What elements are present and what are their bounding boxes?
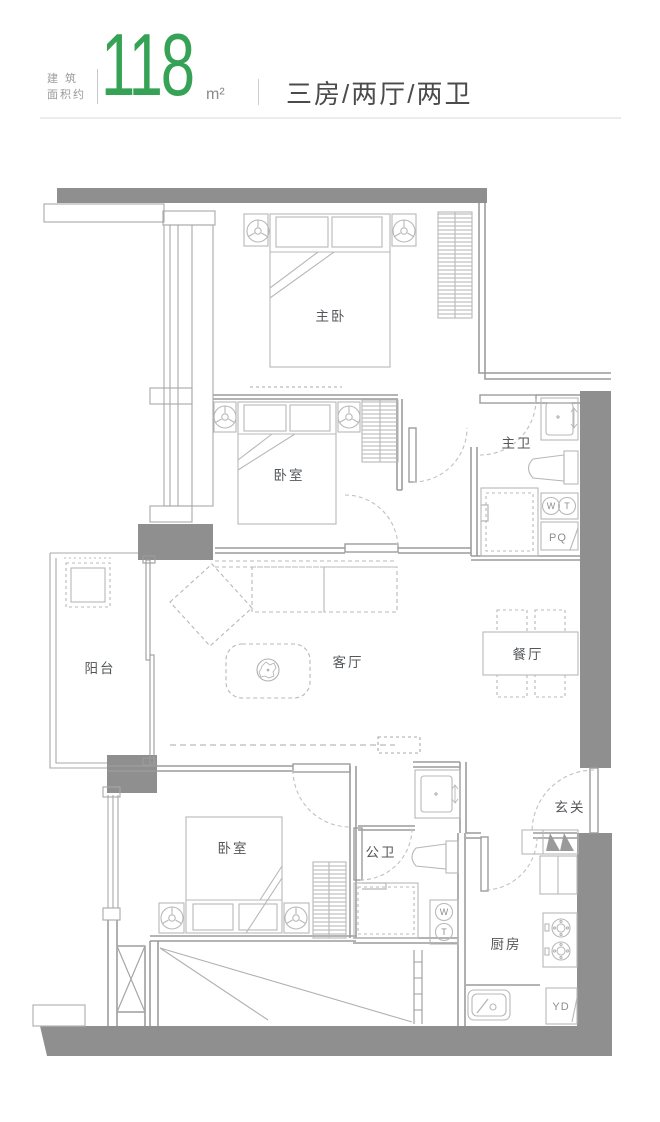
door-arc-bedroom-3 <box>293 770 350 827</box>
toilet-master-bowl <box>529 455 565 481</box>
room-labels: 主卧 卧室 主卫 阳台 客厅 餐厅 卧室 公卫 玄关 厨房 <box>85 309 586 952</box>
door-leaf-entry <box>590 768 598 833</box>
door-leaf-bedroom-2 <box>345 544 398 552</box>
windows <box>44 204 420 920</box>
wall-right-lower <box>577 833 612 1046</box>
bed-3 <box>186 817 282 933</box>
door-arc-bedroom-2 <box>345 495 398 548</box>
duct-shaft <box>33 946 145 1026</box>
furniture <box>64 212 578 1024</box>
master-bedroom-furniture <box>244 212 472 367</box>
room-label-bedroom-2: 卧室 <box>274 467 305 483</box>
room-label-master-bath: 主卫 <box>502 436 533 451</box>
floorplan-page: 建 筑 面积约 118 m² 三房/两厅/两卫 <box>0 0 660 1122</box>
wall-block-mid-left <box>138 524 213 560</box>
wall-bottom <box>40 1026 612 1056</box>
door-leaf-bedroom-3 <box>293 764 350 772</box>
balcony-sliding-door <box>143 556 155 765</box>
room-label-entry: 玄关 <box>555 799 586 815</box>
door-leaf-master-bedroom <box>409 428 416 482</box>
plant <box>257 659 279 681</box>
dryer-label-master: T <box>564 501 570 511</box>
room-label-guest-bath: 公卫 <box>366 845 397 860</box>
living-room-furniture <box>170 561 397 698</box>
door-arc-kitchen <box>484 837 537 890</box>
washer-label-guest: W <box>440 907 449 917</box>
room-label-bedroom-3: 卧室 <box>218 840 249 856</box>
door-arc-master-bedroom <box>413 428 467 482</box>
doors <box>293 395 598 891</box>
room-label-master-bedroom: 主卧 <box>316 309 347 324</box>
door-leaf-master-bath <box>480 395 536 403</box>
window-strip-west <box>150 211 215 522</box>
window-strip-southwest <box>103 787 120 920</box>
room-label-living-room: 客厅 <box>333 654 364 670</box>
bed-master <box>270 214 390 367</box>
bedroom-3-furniture <box>159 817 346 938</box>
pq-label: PQ <box>549 532 567 544</box>
floorplan-svg: 主卧 卧室 主卫 阳台 客厅 餐厅 卧室 公卫 玄关 厨房 W T W T PQ… <box>0 0 660 1122</box>
door-leaf-kitchen <box>481 837 488 891</box>
toilet-guest-bowl <box>412 844 446 869</box>
toilet-master-tank <box>564 451 578 484</box>
room-label-dining-room: 餐厅 <box>513 647 544 662</box>
wall-right-upper <box>580 391 611 768</box>
bed-2 <box>238 402 336 524</box>
room-label-kitchen: 厨房 <box>491 937 522 952</box>
room-label-balcony: 阳台 <box>85 661 116 676</box>
planter <box>66 563 110 607</box>
shower-master <box>481 488 538 556</box>
kitchen-fixtures <box>468 856 577 1024</box>
yd-label: YD <box>552 1001 569 1013</box>
ledge-bottom-left <box>33 1005 85 1026</box>
balcony-furniture <box>64 558 112 607</box>
ledge-top-left <box>44 204 164 222</box>
washer-label-master: W <box>547 501 556 511</box>
toilet-guest-tank <box>446 841 458 873</box>
shower-guest <box>354 883 418 938</box>
dryer-label-guest: T <box>441 927 447 937</box>
bedroom-2-furniture <box>214 400 398 524</box>
wall-top <box>57 188 487 203</box>
sofa-chaise <box>170 564 252 646</box>
